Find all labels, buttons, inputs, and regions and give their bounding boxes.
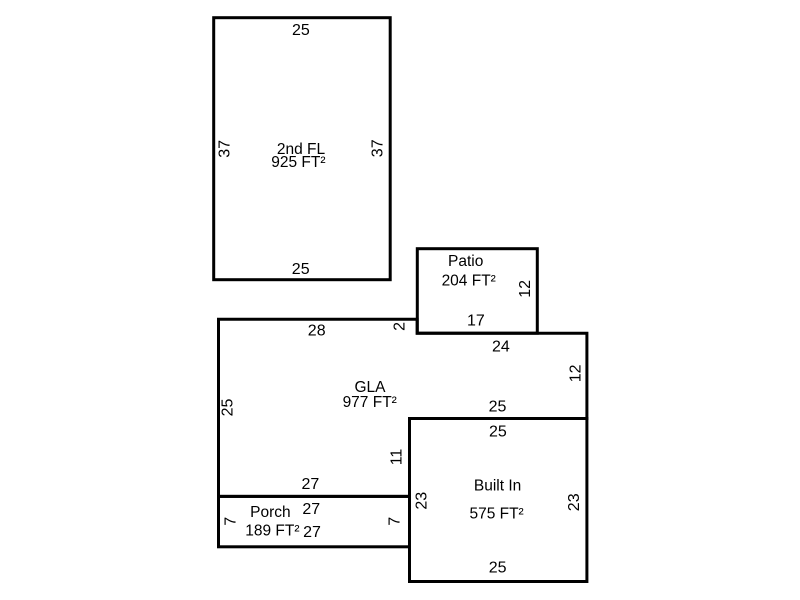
svg-text:24: 24	[492, 339, 510, 356]
svg-text:925 FT²: 925 FT²	[271, 154, 325, 171]
svg-text:204 FT²: 204 FT²	[442, 273, 496, 290]
svg-text:Patio: Patio	[448, 253, 483, 270]
svg-text:25: 25	[489, 399, 507, 416]
svg-text:27: 27	[302, 501, 320, 518]
svg-text:27: 27	[303, 524, 321, 541]
svg-text:Built In: Built In	[474, 477, 521, 494]
svg-text:2: 2	[391, 322, 408, 331]
svg-text:Porch: Porch	[250, 504, 291, 521]
svg-text:25: 25	[489, 423, 507, 440]
svg-text:25: 25	[292, 261, 310, 278]
svg-text:25: 25	[489, 560, 507, 577]
svg-text:12: 12	[567, 364, 584, 382]
svg-text:11: 11	[389, 449, 406, 466]
svg-text:189 FT²: 189 FT²	[245, 523, 299, 540]
svg-text:23: 23	[566, 493, 583, 511]
svg-text:7: 7	[223, 517, 240, 526]
svg-text:7: 7	[387, 517, 404, 526]
svg-text:37: 37	[370, 139, 387, 157]
svg-text:37: 37	[217, 140, 234, 158]
svg-text:27: 27	[302, 476, 320, 493]
svg-text:977 FT²: 977 FT²	[343, 394, 397, 411]
svg-text:23: 23	[414, 492, 431, 510]
svg-text:17: 17	[467, 313, 485, 330]
svg-text:28: 28	[308, 323, 326, 340]
svg-text:12: 12	[517, 280, 534, 298]
svg-text:25: 25	[220, 399, 237, 417]
svg-text:575 FT²: 575 FT²	[469, 506, 523, 523]
svg-text:25: 25	[292, 22, 310, 39]
